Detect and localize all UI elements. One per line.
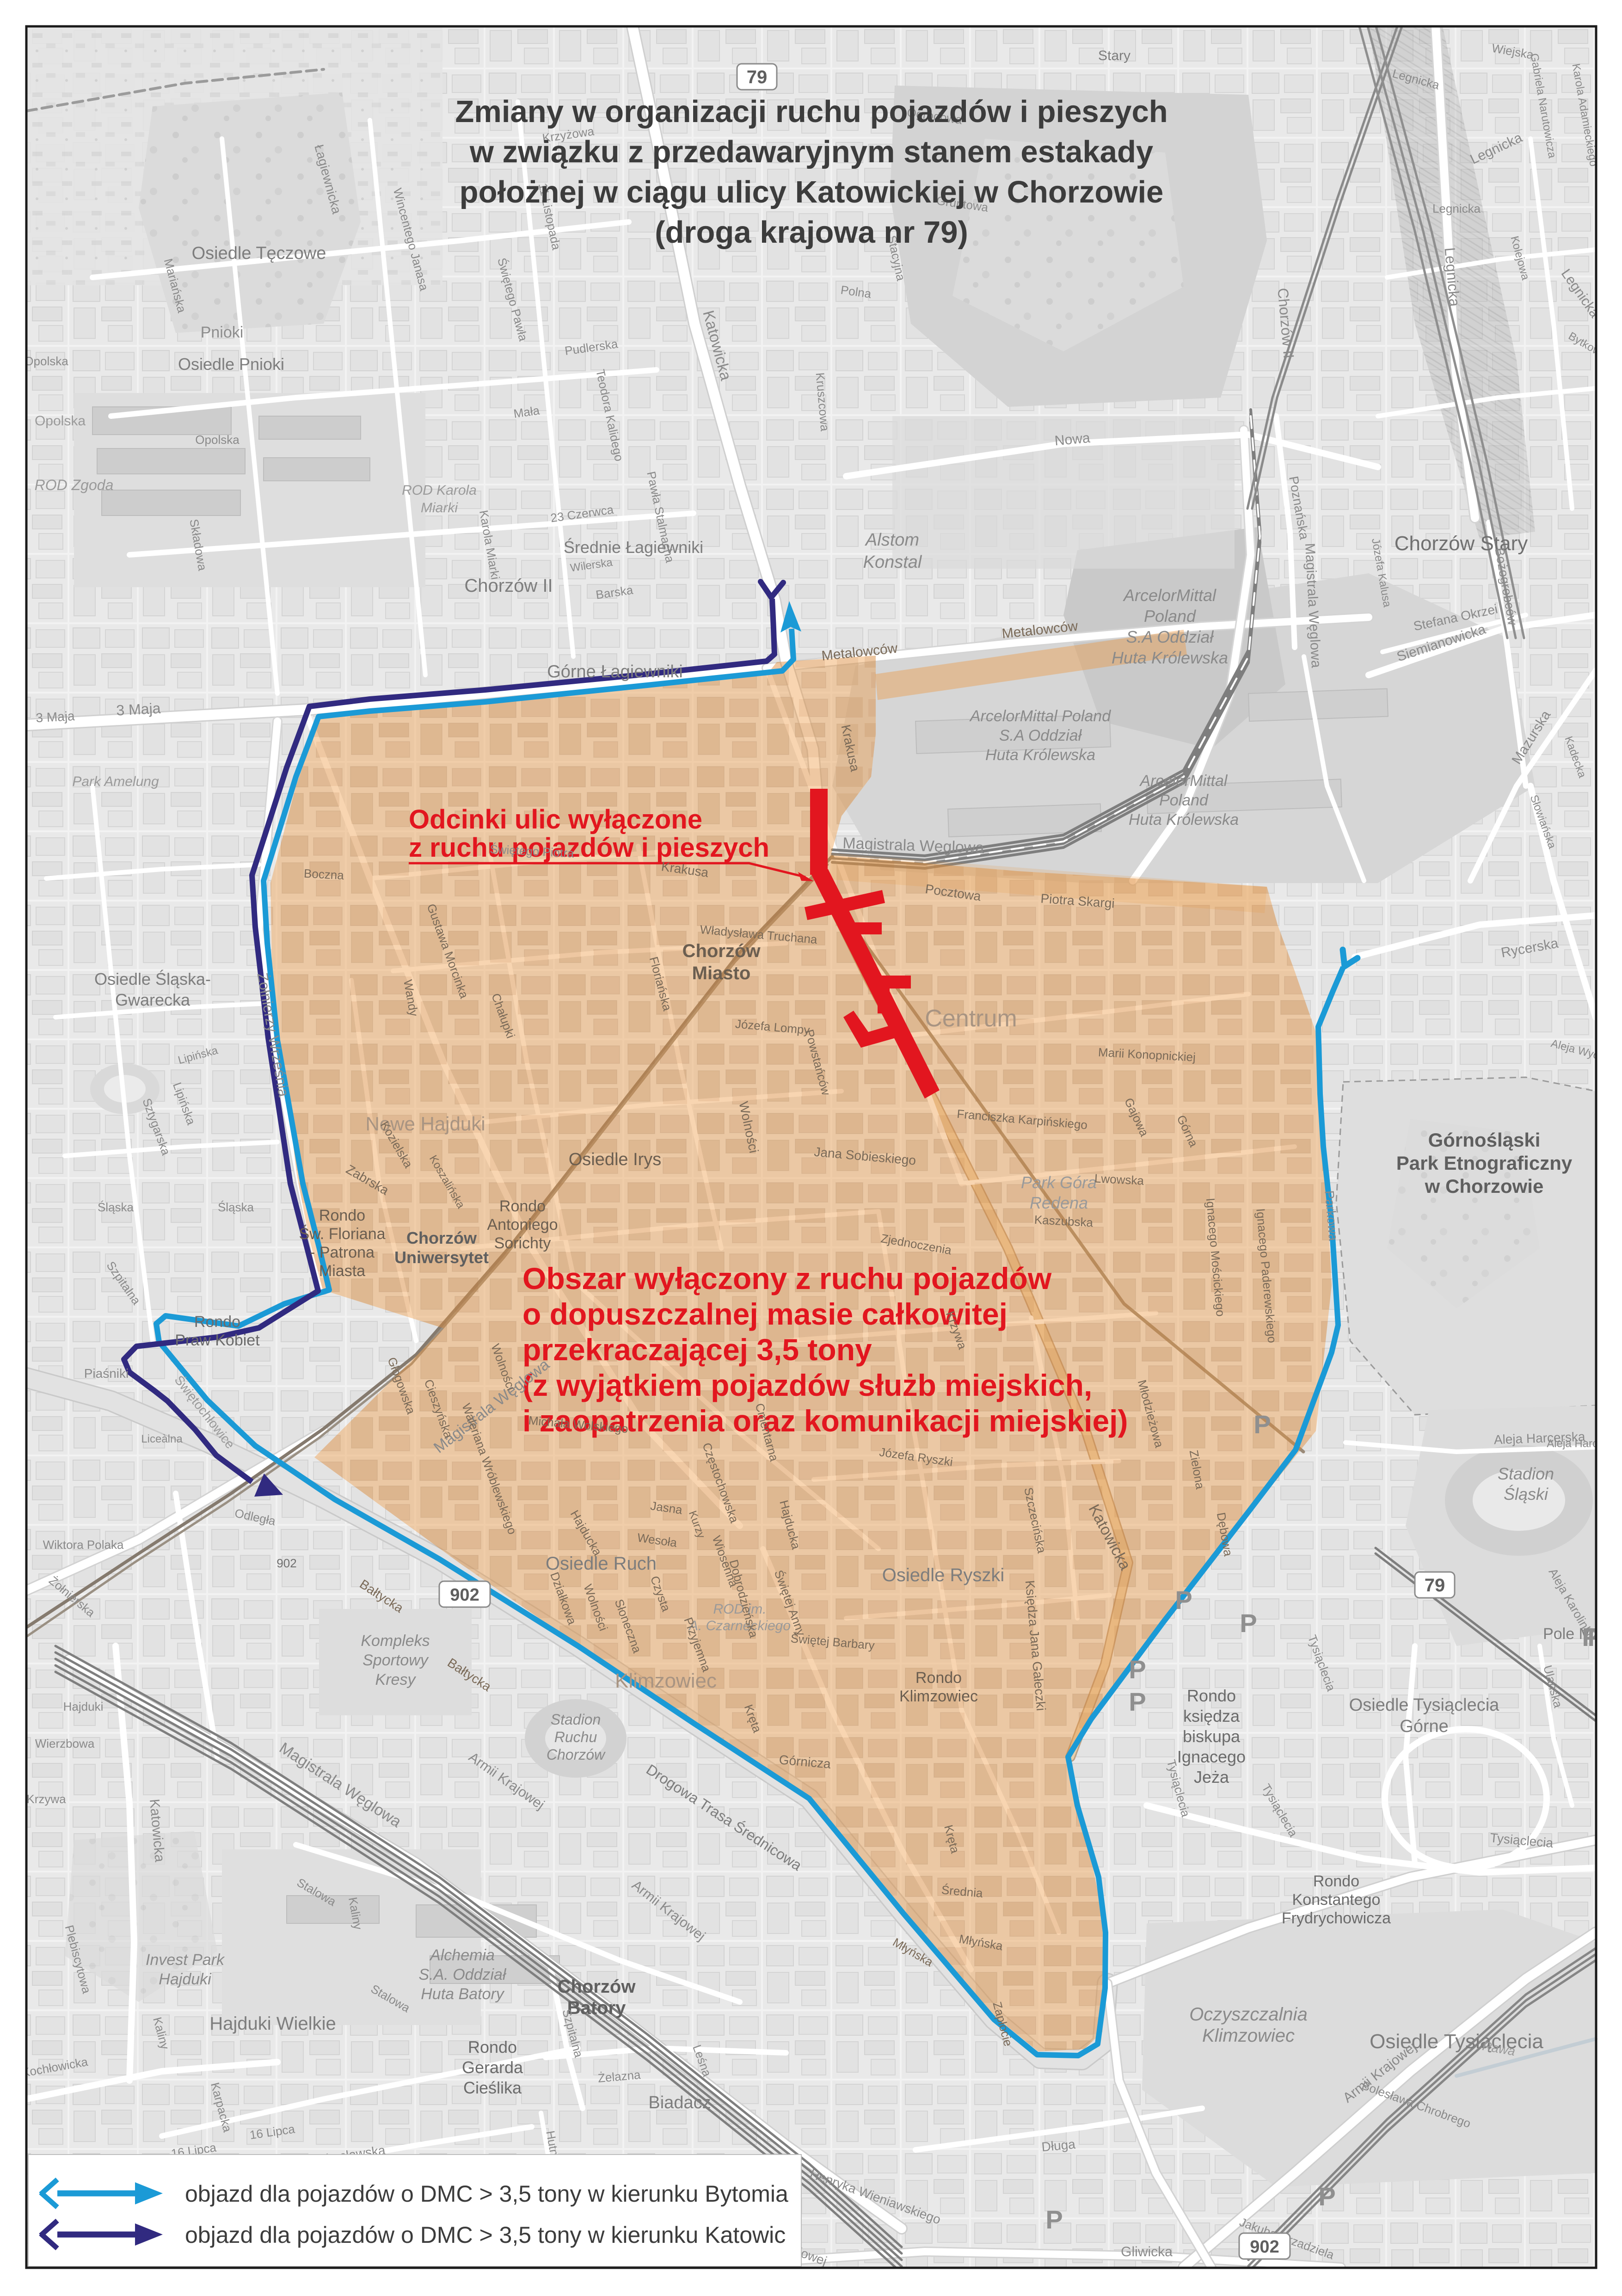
svg-text:Krzywa: Krzywa xyxy=(26,1792,66,1806)
svg-text:Alstom: Alstom xyxy=(865,530,919,550)
svg-text:ArcelorMittal: ArcelorMittal xyxy=(1123,586,1216,605)
svg-text:Wierzbowa: Wierzbowa xyxy=(35,1737,95,1750)
svg-text:Chorzów Stary: Chorzów Stary xyxy=(1395,532,1528,555)
svg-text:Długa: Długa xyxy=(1041,2137,1076,2154)
svg-text:Frydrychowicza: Frydrychowicza xyxy=(1282,1909,1391,1927)
svg-text:79: 79 xyxy=(1425,1575,1445,1596)
svg-text:Piaśniki: Piaśniki xyxy=(84,1366,129,1381)
svg-text:P: P xyxy=(1129,1655,1146,1684)
svg-text:Rondo: Rondo xyxy=(499,1197,546,1215)
svg-text:objazd dla pojazdów o DMC > 3,: objazd dla pojazdów o DMC > 3,5 tony w k… xyxy=(185,2222,786,2248)
svg-text:902: 902 xyxy=(1250,2237,1279,2257)
svg-text:Poland: Poland xyxy=(1144,607,1196,626)
svg-text:Chorzów II: Chorzów II xyxy=(464,576,553,596)
svg-text:ROD Karola: ROD Karola xyxy=(402,483,477,498)
svg-text:Park Góra: Park Góra xyxy=(1021,1173,1097,1192)
svg-text:Huta Królewska: Huta Królewska xyxy=(985,746,1095,764)
svg-text:Osiedle Tysiąclecia: Osiedle Tysiąclecia xyxy=(1349,1695,1499,1715)
svg-text:Chorzów: Chorzów xyxy=(406,1228,477,1247)
svg-text:Św. Floriana: Św. Floriana xyxy=(299,1225,385,1243)
svg-text:Osiedle Ruch: Osiedle Ruch xyxy=(546,1553,657,1574)
svg-text:Miarki: Miarki xyxy=(421,500,458,516)
svg-text:Boczna: Boczna xyxy=(303,866,344,883)
svg-text:Ruchu: Ruchu xyxy=(554,1729,597,1745)
svg-text:P: P xyxy=(1045,2205,1063,2234)
svg-text:Osiedle Śląska-: Osiedle Śląska- xyxy=(94,969,211,988)
svg-text:79: 79 xyxy=(747,67,768,87)
svg-text:Osiedle Ryszki: Osiedle Ryszki xyxy=(882,1565,1005,1585)
svg-text:Sportowy: Sportowy xyxy=(362,1651,429,1669)
svg-text:Cieślika: Cieślika xyxy=(463,2078,522,2097)
svg-text:Chorzów: Chorzów xyxy=(682,941,761,961)
svg-text:Park Etnograficzny: Park Etnograficzny xyxy=(1396,1152,1573,1174)
svg-text:położnej w ciągu ulicy Katowic: położnej w ciągu ulicy Katowickiej w Cho… xyxy=(460,175,1164,209)
svg-text:Górne: Górne xyxy=(1400,1717,1449,1736)
svg-text:S.A. Oddział: S.A. Oddział xyxy=(419,1966,507,1983)
svg-text:księdza: księdza xyxy=(1183,1707,1240,1725)
svg-text:P: P xyxy=(1175,1585,1192,1615)
svg-text:Pnioki: Pnioki xyxy=(201,324,244,341)
svg-text:P: P xyxy=(1240,1608,1257,1638)
svg-text:Kompleks: Kompleks xyxy=(361,1632,430,1650)
svg-text:Legnicka: Legnicka xyxy=(1432,202,1481,215)
svg-text:902: 902 xyxy=(276,1556,296,1570)
svg-text:P: P xyxy=(1318,2182,1335,2211)
svg-text:Opolska: Opolska xyxy=(195,433,240,447)
svg-text:Wiktora Polaka: Wiktora Polaka xyxy=(43,1538,124,1552)
svg-text:Rondo: Rondo xyxy=(319,1207,365,1224)
svg-text:Rondo: Rondo xyxy=(1187,1686,1236,1705)
svg-text:Stary: Stary xyxy=(1098,48,1130,63)
svg-text:Miasto: Miasto xyxy=(692,963,751,983)
svg-text:Górnośląski: Górnośląski xyxy=(1428,1129,1541,1151)
svg-text:S.A Oddział: S.A Oddział xyxy=(1126,627,1214,646)
svg-text:S.A Oddział: S.A Oddział xyxy=(999,727,1082,744)
svg-text:Klimzowiec: Klimzowiec xyxy=(899,1688,978,1705)
svg-text:(droga krajowa nr 79): (droga krajowa nr 79) xyxy=(655,215,968,250)
svg-text:z ruchu pojazdów i pieszych: z ruchu pojazdów i pieszych xyxy=(409,833,769,863)
svg-text:Konstal: Konstal xyxy=(863,553,922,572)
svg-text:ArcelorMittal Poland: ArcelorMittal Poland xyxy=(969,707,1111,725)
svg-text:biskupa: biskupa xyxy=(1183,1727,1241,1746)
svg-text:Batory: Batory xyxy=(567,1998,626,2018)
svg-text:Centrum: Centrum xyxy=(925,1005,1017,1032)
svg-text:Gwarecka: Gwarecka xyxy=(115,990,190,1009)
svg-text:P: P xyxy=(1253,1410,1271,1439)
svg-text:objazd dla pojazdów o DMC > 3,: objazd dla pojazdów o DMC > 3,5 tony w k… xyxy=(185,2181,788,2207)
svg-text:Opolska: Opolska xyxy=(24,354,68,368)
svg-text:w związku z przedawaryjnym sta: w związku z przedawaryjnym stanem estaka… xyxy=(469,135,1153,169)
svg-text:Stadion: Stadion xyxy=(1498,1464,1554,1483)
svg-text:Osiedle Tysiąclecia: Osiedle Tysiąclecia xyxy=(1370,2030,1543,2053)
svg-text:Huta Królewska: Huta Królewska xyxy=(1112,648,1228,667)
svg-text:Chorzów: Chorzów xyxy=(547,1746,606,1763)
svg-text:Stadion: Stadion xyxy=(551,1711,601,1728)
svg-text:- Patrona: - Patrona xyxy=(310,1244,375,1261)
svg-text:Osiedle Irys: Osiedle Irys xyxy=(569,1150,662,1169)
svg-text:Invest Park: Invest Park xyxy=(146,1951,225,1969)
svg-text:Liceàlna: Liceàlna xyxy=(141,1433,183,1445)
svg-text:Jeża: Jeża xyxy=(1194,1768,1229,1786)
svg-text:Hajduki: Hajduki xyxy=(63,1700,104,1713)
svg-text:A. Czarneckiego: A. Czarneckiego xyxy=(688,1618,791,1633)
svg-text:Lwowska: Lwowska xyxy=(1094,1171,1144,1188)
svg-text:Rondo: Rondo xyxy=(468,2038,517,2057)
svg-text:Obszar wyłączony z ruchu pojaz: Obszar wyłączony z ruchu pojazdów xyxy=(522,1261,1052,1295)
svg-text:Osiedle Tęczowe: Osiedle Tęczowe xyxy=(192,244,326,263)
svg-text:Konstantego: Konstantego xyxy=(1292,1891,1381,1909)
svg-text:ROD Zgoda: ROD Zgoda xyxy=(35,477,114,493)
svg-text:Rondo: Rondo xyxy=(194,1313,240,1331)
svg-text:Park Amelung: Park Amelung xyxy=(72,774,159,789)
svg-text:Praw Kobiet: Praw Kobiet xyxy=(175,1332,260,1349)
svg-text:Huta Królewska: Huta Królewska xyxy=(1129,811,1239,829)
svg-text:Redena: Redena xyxy=(1030,1193,1088,1212)
svg-text:Biadacz: Biadacz xyxy=(648,2093,711,2112)
svg-text:Śląska: Śląska xyxy=(218,1200,254,1214)
svg-text:Poland: Poland xyxy=(1159,792,1209,809)
svg-text:Alchemia: Alchemia xyxy=(429,1946,495,1964)
svg-text:przekraczającej 3,5 tony: przekraczającej 3,5 tony xyxy=(522,1332,872,1367)
svg-text:w Chorzowie: w Chorzowie xyxy=(1425,1175,1544,1197)
svg-text:Uniwersytet: Uniwersytet xyxy=(394,1248,489,1267)
svg-text:Oczyszczalnia: Oczyszczalnia xyxy=(1189,2004,1308,2025)
svg-text:Gliwicka: Gliwicka xyxy=(1121,2244,1173,2259)
svg-text:Hajduki: Hajduki xyxy=(159,1971,212,1988)
svg-text:Chorzów: Chorzów xyxy=(558,1977,636,1997)
svg-text:Miasta: Miasta xyxy=(319,1262,365,1280)
svg-text:Kresy: Kresy xyxy=(375,1671,417,1688)
svg-text:Górne Łagiewniki: Górne Łagiewniki xyxy=(547,662,683,681)
svg-text:Odcinki ulic wyłączone: Odcinki ulic wyłączone xyxy=(409,804,702,835)
svg-text:Opolska: Opolska xyxy=(35,413,86,429)
svg-text:Rondo: Rondo xyxy=(915,1669,962,1687)
svg-text:Śląski: Śląski xyxy=(1504,1484,1548,1504)
svg-text:Hajduki Wielkie: Hajduki Wielkie xyxy=(209,2014,336,2034)
svg-text:P: P xyxy=(1129,1687,1146,1716)
svg-text:Osiedle Pnioki: Osiedle Pnioki xyxy=(178,355,284,374)
svg-text:Gerarda: Gerarda xyxy=(462,2058,523,2077)
svg-text:Huta Batory: Huta Batory xyxy=(421,1985,505,2003)
svg-text:Ignacego: Ignacego xyxy=(1177,1747,1246,1766)
svg-text:ArcelorMittal: ArcelorMittal xyxy=(1139,772,1228,790)
svg-text:Średnie Łagiewniki: Średnie Łagiewniki xyxy=(564,537,703,557)
svg-text:Śląska: Śląska xyxy=(98,1200,134,1214)
svg-text:Rondo: Rondo xyxy=(1313,1872,1359,1890)
svg-text:o dopuszczalnej masie całkowit: o dopuszczalnej masie całkowitej xyxy=(522,1297,1008,1331)
svg-text:Nowa: Nowa xyxy=(1054,430,1091,449)
svg-text:3 Maja: 3 Maja xyxy=(116,700,161,719)
svg-text:Sorichty: Sorichty xyxy=(494,1234,551,1252)
svg-text:902: 902 xyxy=(450,1585,479,1605)
svg-text:Antoniego: Antoniego xyxy=(487,1216,558,1234)
svg-text:Zmiany w organizacji ruchu poj: Zmiany w organizacji ruchu pojazdów i pi… xyxy=(455,94,1167,129)
svg-text:(z wyjątkiem pojazdów służb mi: (z wyjątkiem pojazdów służb miejskich, xyxy=(522,1368,1092,1402)
svg-text:3 Maja: 3 Maja xyxy=(36,709,75,725)
svg-text:Klimzowiec: Klimzowiec xyxy=(1202,2026,1295,2046)
